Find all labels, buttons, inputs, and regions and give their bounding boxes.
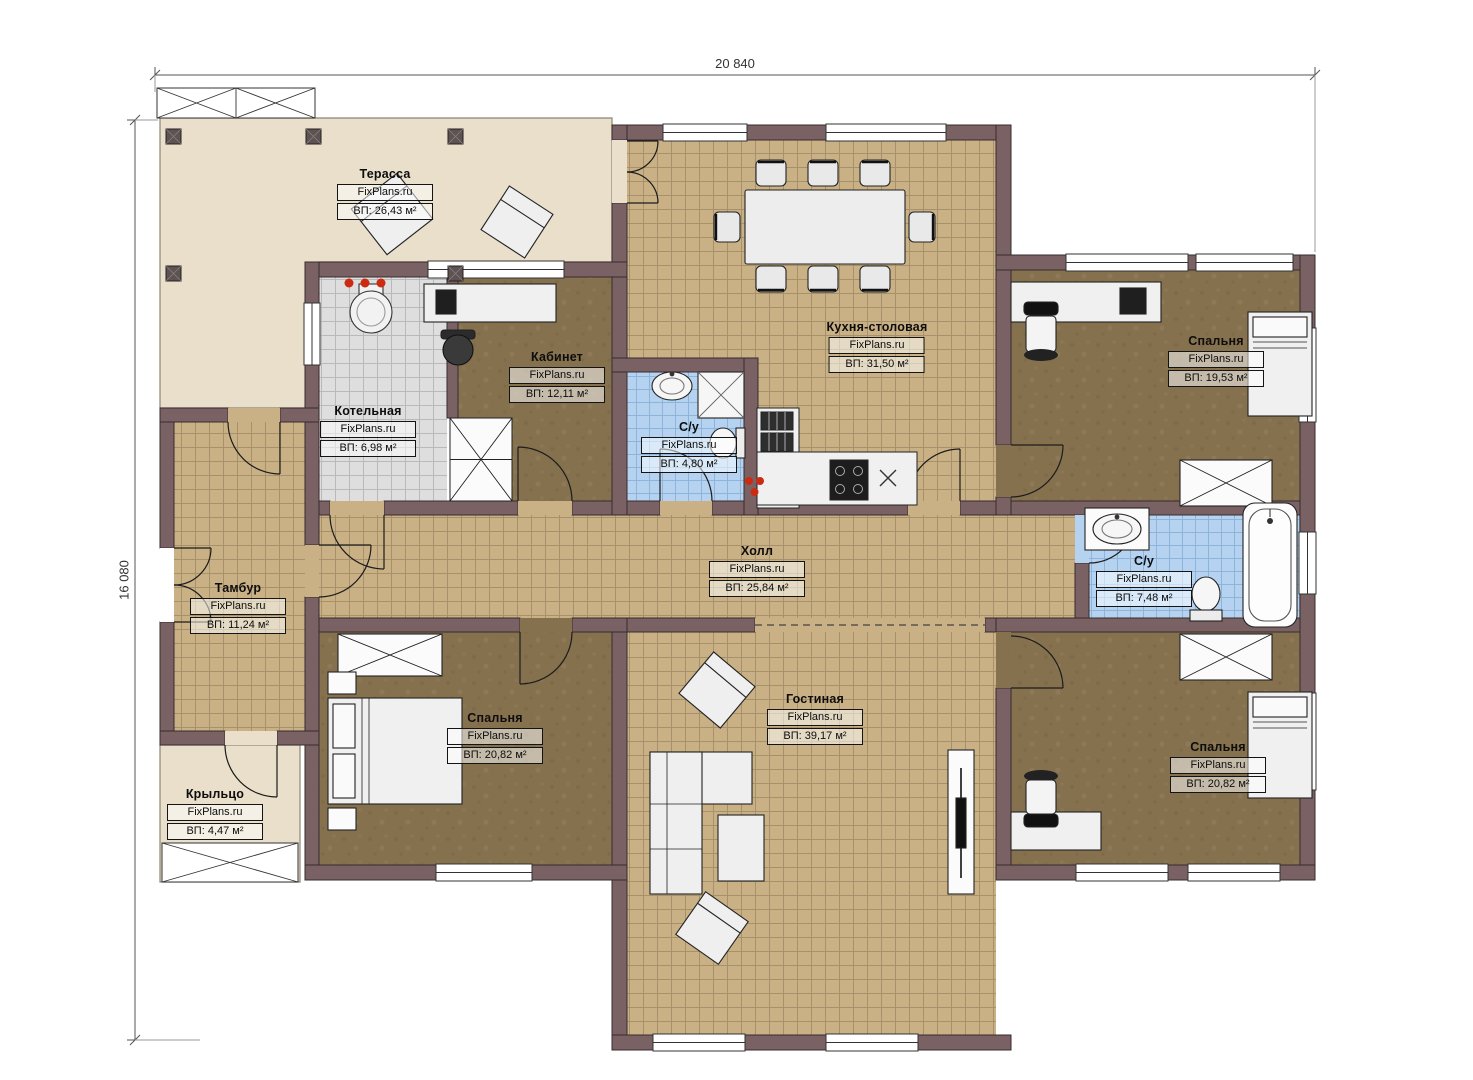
brand-watermark: FixPlans.ru [447, 728, 543, 745]
room-name: Спальня [467, 711, 522, 725]
office-cabinet [450, 418, 512, 501]
room-name: Гостиная [786, 692, 844, 706]
room-area: ВП: 4,80 м² [641, 456, 737, 473]
room-area: ВП: 25,84 м² [709, 580, 805, 597]
brand-watermark: FixPlans.ru [1168, 351, 1264, 368]
brand-watermark: FixPlans.ru [709, 561, 805, 578]
brand-watermark: FixPlans.ru [509, 367, 605, 384]
brand-watermark: FixPlans.ru [767, 709, 863, 726]
tambur-floor [174, 422, 305, 731]
room-area: ВП: 20,82 м² [447, 747, 543, 764]
room-label-terrace: Терасса FixPlans.ru ВП: 26,43 м² [337, 167, 433, 220]
brand-watermark: FixPlans.ru [1170, 757, 1266, 774]
room-name: Кухня-столовая [827, 320, 928, 334]
terrace-steps [157, 88, 315, 118]
room-name: Кабинет [531, 350, 583, 364]
room-area: ВП: 12,11 м² [509, 386, 605, 403]
room-name: Спальня [1190, 740, 1245, 754]
room-name: Терасса [360, 167, 411, 181]
dimension-width-label: 20 840 [715, 56, 755, 71]
brand-watermark: FixPlans.ru [190, 598, 286, 615]
room-area: ВП: 7,48 м² [1096, 590, 1192, 607]
floor-plan-drawing [0, 0, 1473, 1080]
brand-watermark: FixPlans.ru [320, 421, 416, 438]
wardrobe [1180, 634, 1272, 680]
room-label-boiler: Котельная FixPlans.ru ВП: 6,98 м² [320, 404, 416, 457]
room-area: ВП: 6,98 м² [320, 440, 416, 457]
brand-watermark: FixPlans.ru [829, 337, 925, 354]
room-name: Крыльцо [186, 787, 244, 801]
room-area: ВП: 11,24 м² [190, 617, 286, 634]
hall-floor [319, 515, 1075, 618]
room-label-kitchen: Кухня-столовая FixPlans.ru ВП: 31,50 м² [827, 320, 928, 373]
room-label-hall: Холл FixPlans.ru ВП: 25,84 м² [709, 544, 805, 597]
room-label-wc-small: С/у FixPlans.ru ВП: 4,80 м² [641, 420, 737, 473]
dimension-height-label: 16 080 [117, 560, 132, 600]
room-label-living: Гостиная FixPlans.ru ВП: 39,17 м² [767, 692, 863, 745]
porch-steps [162, 843, 298, 882]
room-area: ВП: 26,43 м² [337, 203, 433, 220]
room-name: Холл [741, 544, 773, 558]
wardrobe [338, 634, 442, 676]
brand-watermark: FixPlans.ru [337, 184, 433, 201]
brand-watermark: FixPlans.ru [641, 437, 737, 454]
room-label-bedroom-br: Спальня FixPlans.ru ВП: 20,82 м² [1170, 740, 1266, 793]
room-area: ВП: 20,82 м² [1170, 776, 1266, 793]
room-label-tambur: Тамбур FixPlans.ru ВП: 11,24 м² [190, 581, 286, 634]
room-area: ВП: 19,53 м² [1168, 370, 1264, 387]
room-name: С/у [679, 420, 699, 434]
wardrobe [1180, 460, 1272, 506]
brand-watermark: FixPlans.ru [1096, 571, 1192, 588]
room-area: ВП: 4,47 м² [167, 823, 263, 840]
room-label-porch: Крыльцо FixPlans.ru ВП: 4,47 м² [167, 787, 263, 840]
brand-watermark: FixPlans.ru [167, 804, 263, 821]
room-name: Спальня [1188, 334, 1243, 348]
room-name: Тамбур [215, 581, 262, 595]
room-name: Котельная [334, 404, 401, 418]
room-label-office: Кабинет FixPlans.ru ВП: 12,11 м² [509, 350, 605, 403]
room-label-bedroom-tr: Спальня FixPlans.ru ВП: 19,53 м² [1168, 334, 1264, 387]
room-area: ВП: 31,50 м² [829, 356, 925, 373]
room-name: С/у [1134, 554, 1154, 568]
room-label-wc-big: С/у FixPlans.ru ВП: 7,48 м² [1096, 554, 1192, 607]
bedroom-bl-furniture [328, 634, 462, 830]
floor-plan-canvas: 20 840 16 080 Терасса FixPlans.ru ВП: 26… [0, 0, 1473, 1080]
room-label-bedroom-bl: Спальня FixPlans.ru ВП: 20,82 м² [447, 711, 543, 764]
room-area: ВП: 39,17 м² [767, 728, 863, 745]
